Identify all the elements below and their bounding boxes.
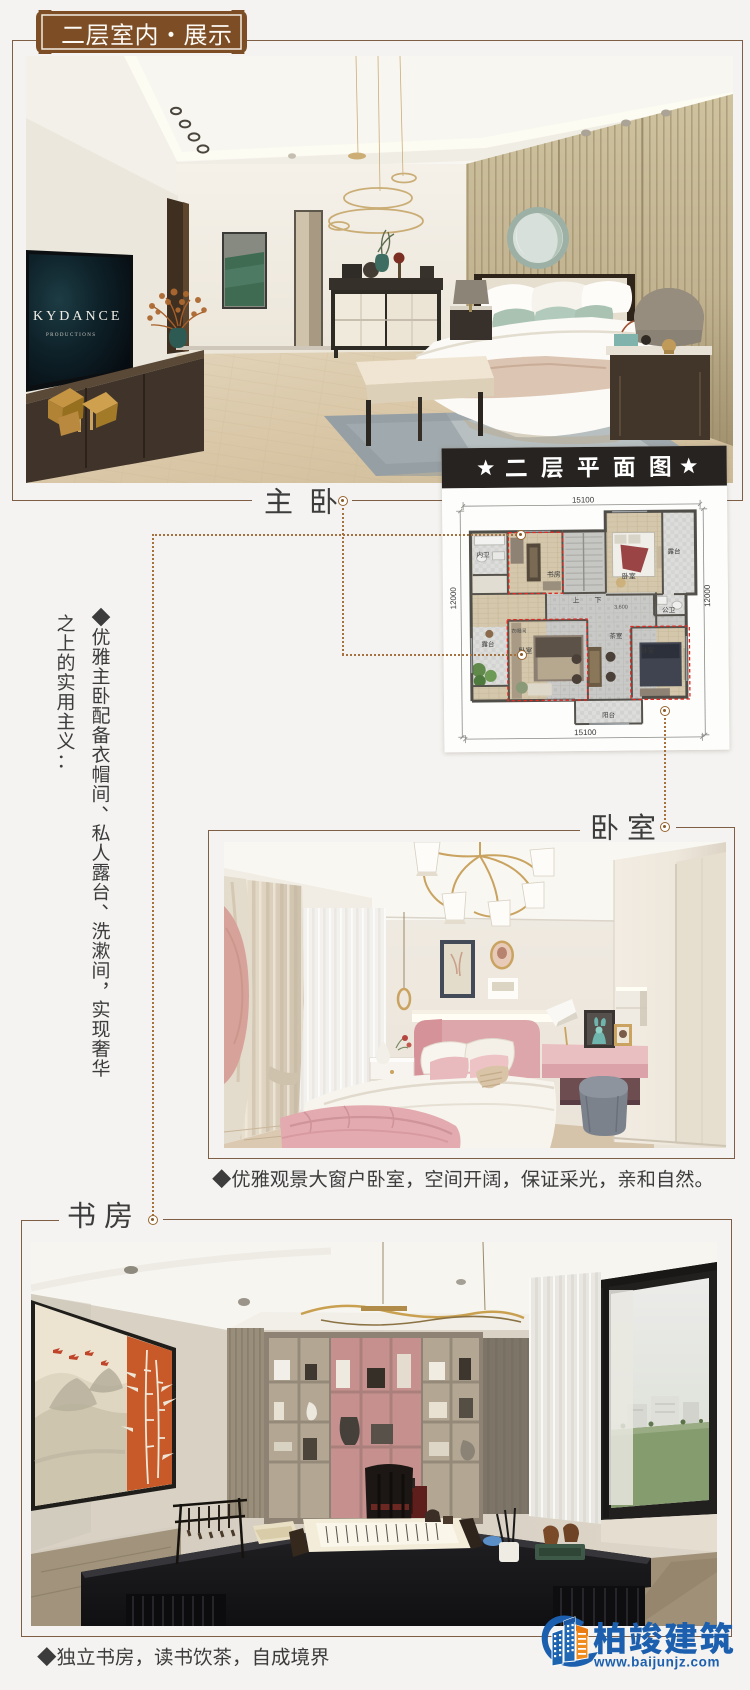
svg-text:PRODUCTIONS: PRODUCTIONS [46,333,96,338]
svg-text:15100: 15100 [574,728,597,737]
svg-text:3.600: 3.600 [614,605,628,611]
svg-text:www.baijunjz.com: www.baijunjz.com [593,1655,720,1670]
svg-text:15100: 15100 [572,495,595,504]
svg-text:12000: 12000 [703,584,712,607]
svg-text:12000: 12000 [449,587,458,610]
svg-text:KYDANCE: KYDANCE [33,309,122,324]
